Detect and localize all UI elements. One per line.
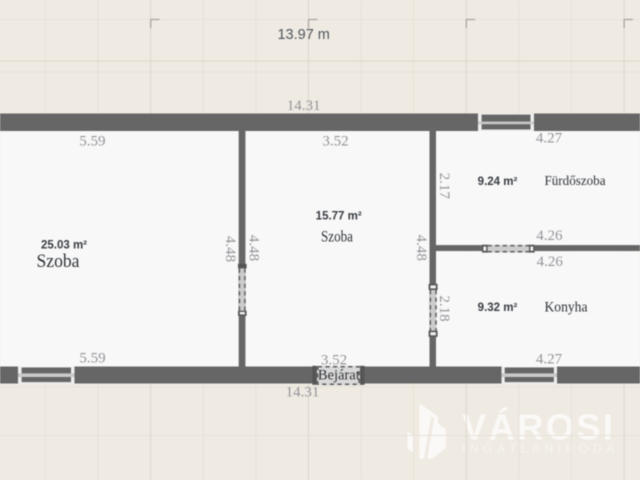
svg-text:15.77 m²: 15.77 m² [316,211,362,223]
svg-text:Konyha: Konyha [545,300,588,316]
svg-text:4.27: 4.27 [536,352,563,368]
svg-text:2.17: 2.17 [436,173,452,200]
svg-text:4.48: 4.48 [413,235,429,261]
svg-text:13.97 m: 13.97 m [277,27,329,43]
svg-text:25.03 m²: 25.03 m² [41,240,87,252]
svg-text:Szoba: Szoba [321,228,353,245]
svg-text:14.31: 14.31 [286,385,320,401]
svg-text:9.32 m²: 9.32 m² [478,302,518,314]
svg-text:4.26: 4.26 [537,254,564,270]
svg-text:3.52: 3.52 [321,353,347,369]
svg-text:Szoba: Szoba [37,251,81,272]
svg-text:5.59: 5.59 [79,351,105,367]
svg-text:4.27: 4.27 [536,131,563,147]
svg-text:INGATLANIRODA: INGATLANIRODA [462,442,619,456]
svg-text:9.24 m²: 9.24 m² [478,176,518,188]
svg-text:3.52: 3.52 [322,134,348,150]
svg-text:4.48: 4.48 [222,236,238,262]
svg-text:14.31: 14.31 [287,98,321,114]
svg-text:5.59: 5.59 [79,134,105,150]
svg-text:Bejárat: Bejárat [318,368,360,384]
svg-text:4.26: 4.26 [536,228,563,244]
svg-text:2.18: 2.18 [436,295,452,321]
svg-text:4.48: 4.48 [246,235,262,261]
svg-text:Fürdőszoba: Fürdőszoba [545,174,607,189]
